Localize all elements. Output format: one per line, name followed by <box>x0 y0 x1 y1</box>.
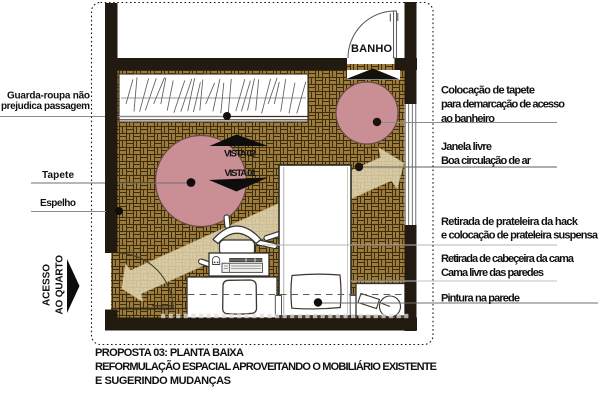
svg-text:ACESSO: ACESSO <box>42 264 53 306</box>
svg-text:Retirada de prateleira da hack: Retirada de prateleira da hack <box>441 216 579 228</box>
svg-text:VISTA 01: VISTA 01 <box>225 168 258 179</box>
svg-text:REFORMULAÇÃO ESPACIAL APROVEIT: REFORMULAÇÃO ESPACIAL APROVEITANDO O MOB… <box>95 360 437 373</box>
svg-text:ao banheiro: ao banheiro <box>441 113 495 125</box>
svg-text:VISTA 02: VISTA 02 <box>224 149 256 160</box>
svg-text:prejudica passagem: prejudica passagem <box>1 101 90 112</box>
svg-text:Colocação de tapete: Colocação de tapete <box>441 84 535 96</box>
svg-text:BANHO: BANHO <box>351 43 392 55</box>
svg-text:PROPOSTA 03: PLANTA BAIXA: PROPOSTA 03: PLANTA BAIXA <box>95 347 244 359</box>
svg-text:E SUGERINDO MUDANÇAS: E SUGERINDO MUDANÇAS <box>95 375 231 387</box>
svg-text:Cama livre das paredes: Cama livre das paredes <box>441 267 544 279</box>
svg-text:Boa circulação de ar: Boa circulação de ar <box>441 155 532 167</box>
svg-text:Guarda-roupa não: Guarda-roupa não <box>7 90 90 101</box>
svg-text:para demarcação de acesso: para demarcação de acesso <box>441 99 565 111</box>
svg-text:AO QUARTO: AO QUARTO <box>55 255 66 315</box>
svg-text:e colocação de prateleira susp: e colocação de prateleira suspensa <box>441 230 599 242</box>
svg-text:Tapete: Tapete <box>42 170 74 181</box>
svg-text:Janela livre: Janela livre <box>441 141 492 153</box>
svg-text:Pintura na parede: Pintura na parede <box>441 293 520 305</box>
svg-text:Retirada de cabeçeira da cama: Retirada de cabeçeira da cama <box>441 253 575 265</box>
svg-text:Espelho: Espelho <box>40 198 76 209</box>
